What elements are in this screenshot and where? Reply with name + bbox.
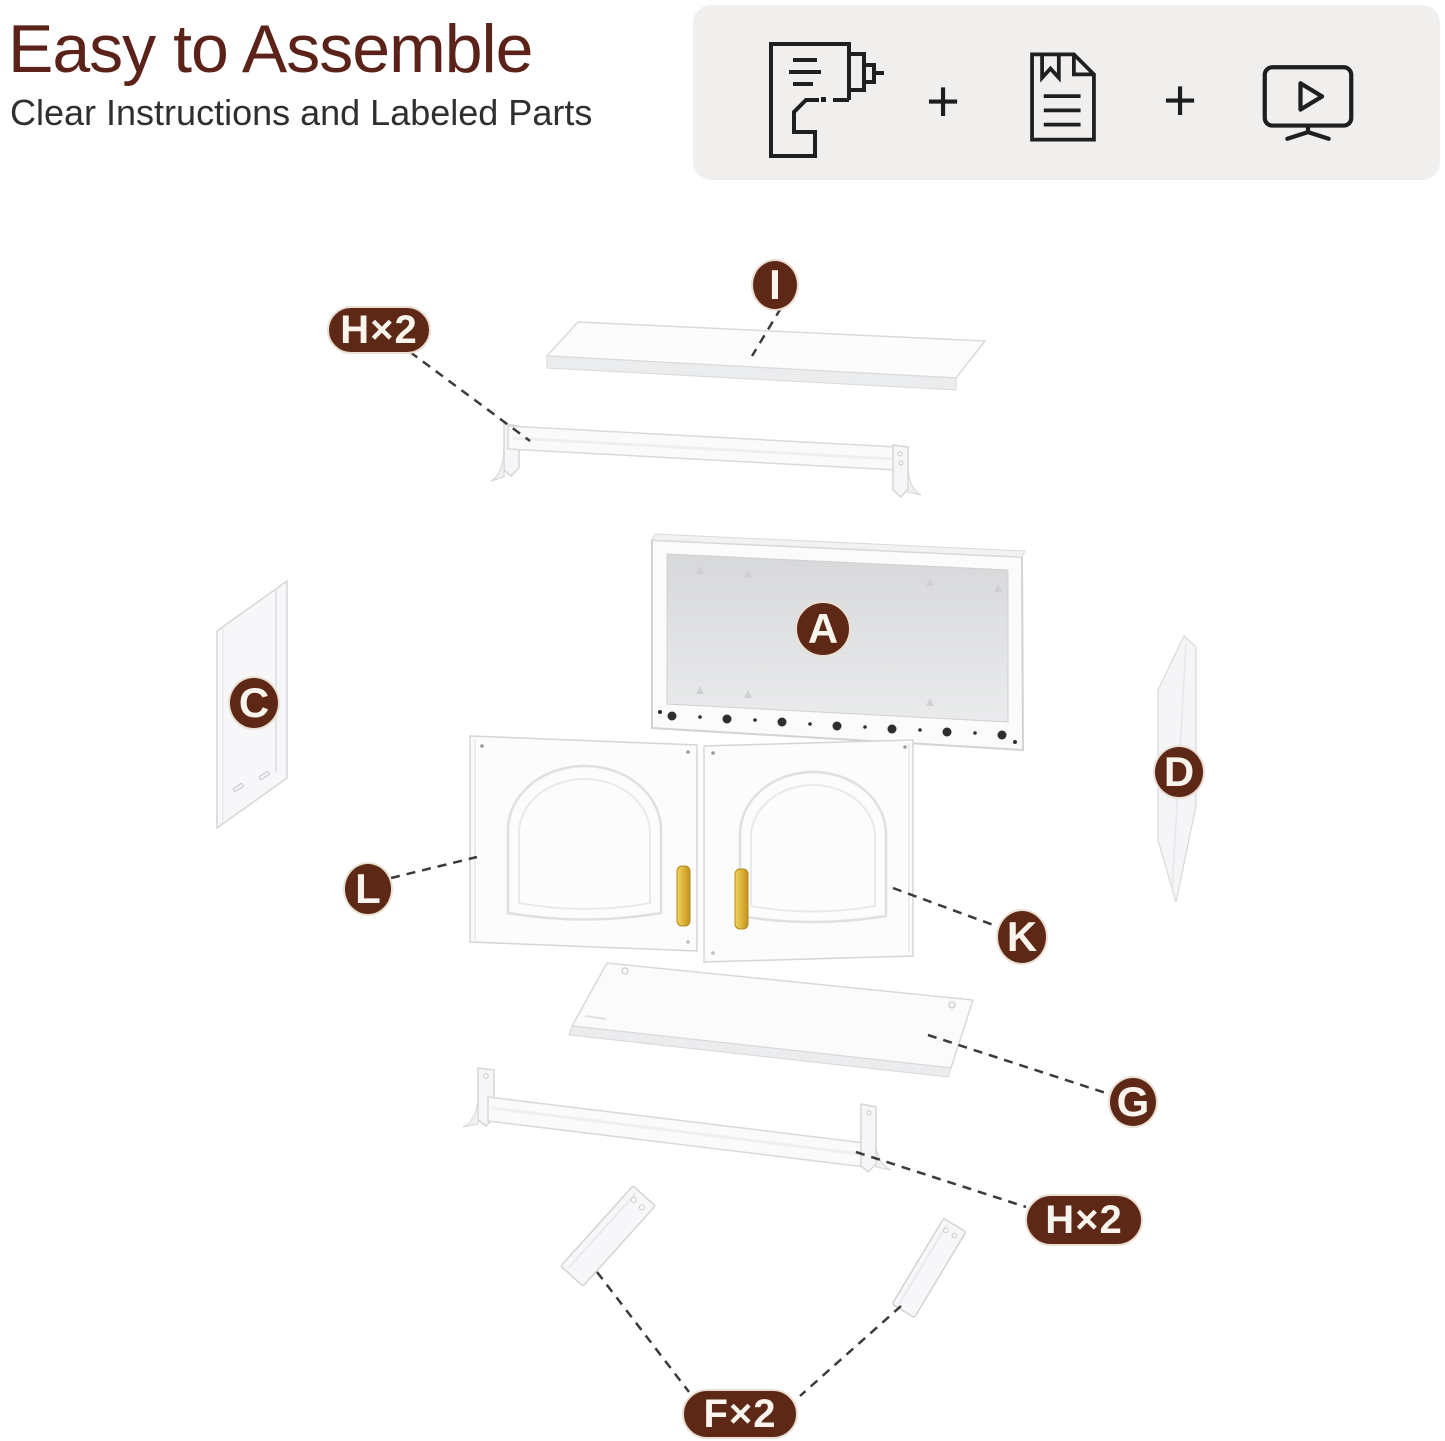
product-diagram-image: Easy to Assemble Clear Instructions and … [0, 0, 1445, 1441]
part-mounting-rail-F-right [892, 1218, 966, 1317]
leader-line-H2-bottom [856, 1152, 1026, 1207]
part-bottom-shelf-G [569, 963, 973, 1077]
part-top-shelf-I [547, 322, 985, 390]
part-mounting-rail-F-left [561, 1186, 656, 1286]
part-label-D: D [1153, 745, 1205, 799]
part-label-A: A [795, 601, 851, 657]
part-right-door-K [704, 740, 913, 962]
exploded-parts-drawing [0, 0, 1445, 1441]
leader-line-F-right [800, 1306, 901, 1396]
part-label-I: I [751, 259, 799, 311]
part-label-L: L [343, 862, 393, 916]
part-label-K: K [996, 909, 1048, 965]
part-label-H2-bottom: H×2 [1025, 1194, 1143, 1246]
part-label-G: G [1108, 1076, 1158, 1128]
part-label-F2: F×2 [682, 1389, 798, 1439]
leader-line-F-left [597, 1272, 689, 1392]
part-hanging-rod-H-top [491, 424, 921, 497]
part-hanging-rod-H-bottom [463, 1068, 891, 1172]
leader-line-L [391, 857, 477, 878]
part-left-door-L [470, 736, 697, 951]
part-label-H2-top: H×2 [327, 306, 431, 354]
part-label-C: C [228, 676, 280, 730]
